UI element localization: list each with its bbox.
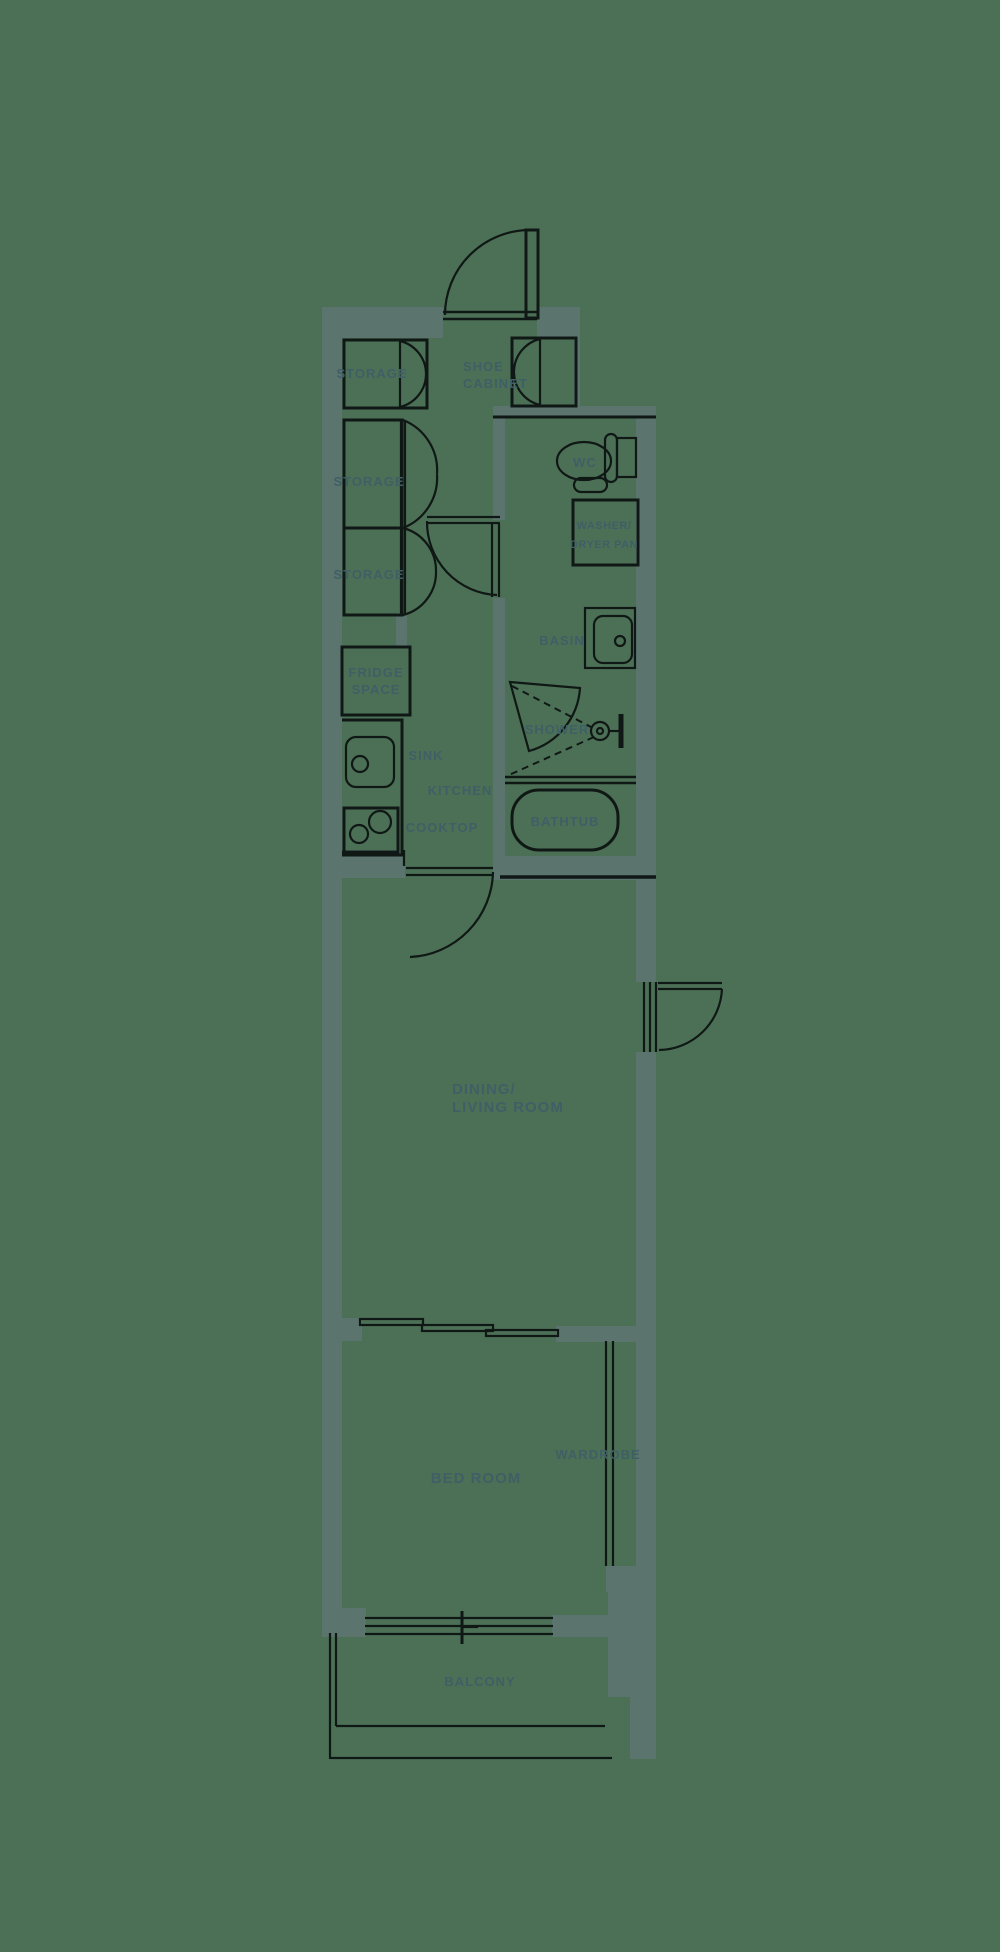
label-fridge-1: FRIDGE	[348, 665, 403, 680]
washer-dryer-pan	[573, 500, 638, 565]
bathroom-divider-line	[505, 777, 636, 783]
slider-panel-2	[422, 1325, 493, 1331]
label-cooktop: COOKTOP	[406, 820, 479, 835]
wall-divider-left	[322, 1318, 362, 1341]
balcony-bottom-rail	[330, 1726, 612, 1758]
cooktop-burner-2	[350, 825, 368, 843]
bedroom-window	[365, 1611, 553, 1644]
floor-plan: STORAGE SHOE CABINET STORAGE STORAGE WC …	[0, 0, 1000, 1952]
cooktop-burner-1	[369, 811, 391, 833]
side-door-panel	[658, 983, 722, 989]
entrance-door-swing-arc	[445, 230, 530, 315]
label-shoe-cabinet-1: SHOE	[463, 359, 504, 374]
shoe-cabinet-box	[512, 338, 576, 406]
basin-vanity	[585, 608, 635, 668]
entrance-threshold	[443, 312, 537, 319]
side-door-swing-arc	[659, 989, 722, 1050]
storage3-double-door	[403, 528, 436, 615]
washroom-door	[427, 517, 500, 597]
label-basin: BASIN	[539, 633, 584, 648]
room-labels: STORAGE SHOE CABINET STORAGE STORAGE WC …	[333, 359, 640, 1689]
balcony-railing	[330, 1633, 612, 1759]
shower-head-center	[597, 728, 603, 734]
label-bedroom: BED ROOM	[431, 1470, 522, 1487]
basin-bowl	[594, 616, 632, 663]
sliding-partition	[360, 1319, 558, 1336]
basin-faucet	[615, 636, 625, 646]
label-storage-1: STORAGE	[336, 366, 407, 381]
wall-right-bedroom	[636, 1341, 656, 1608]
label-shower: SHOWER	[525, 722, 590, 737]
label-fridge-2: SPACE	[352, 682, 401, 697]
wall-balcony-right-lower	[630, 1697, 656, 1759]
label-washer-2: DRYER PAN	[570, 539, 638, 551]
label-dining-1: DINING/	[452, 1081, 516, 1098]
wall-bedroom-bottom-right	[552, 1615, 608, 1637]
label-dining-2: LIVING ROOM	[452, 1099, 564, 1116]
entrance-door-panel	[526, 230, 538, 318]
shower-head-icon	[591, 722, 609, 740]
label-storage-2: STORAGE	[333, 474, 404, 489]
wall-top-left	[326, 307, 443, 338]
label-wc: WC	[573, 455, 597, 470]
wall-right-living-lower	[636, 1052, 656, 1340]
floor-plan-drawing: STORAGE SHOE CABINET STORAGE STORAGE WC …	[0, 0, 1000, 1952]
wall-divider-right	[556, 1326, 656, 1342]
label-sink: SINK	[408, 748, 443, 763]
label-wardrobe: WARDROBE	[555, 1447, 640, 1462]
washer-pan-box	[573, 500, 638, 565]
balcony-left-rail	[330, 1633, 336, 1759]
label-kitchen: KITCHEN	[428, 783, 493, 798]
label-storage-3: STORAGE	[333, 567, 404, 582]
storage2-double-door	[403, 420, 437, 528]
slider-panel-1	[360, 1319, 423, 1325]
kitchen-door	[404, 850, 493, 957]
label-bathtub: BATHTUB	[531, 814, 600, 829]
side-door-frame	[644, 982, 656, 1052]
living-side-door	[644, 982, 722, 1052]
slider-panel-3	[486, 1330, 558, 1336]
wall-right-living-upper	[636, 880, 656, 982]
wall-bedroom-bottom-left	[322, 1608, 366, 1637]
label-washer-1: WASHER/	[577, 520, 632, 532]
wall-hall-partition-lower	[493, 598, 505, 880]
wall-hall-partition-upper	[493, 418, 505, 520]
wall-stub-hall	[396, 613, 407, 647]
washroom-door-panel	[427, 517, 500, 523]
washroom-door-swing-arc	[427, 521, 497, 595]
kitchen-door-swing-arc	[410, 872, 493, 957]
shoe-cabinet	[512, 338, 576, 406]
toilet-tank	[617, 438, 636, 477]
washroom-door-frame	[492, 524, 499, 597]
sink-drain	[352, 756, 368, 772]
wall-balcony-right-upper	[608, 1590, 656, 1697]
label-shoe-cabinet-2: CABINET	[463, 376, 528, 391]
wall-left-exterior	[322, 307, 342, 1637]
wall-top-right	[537, 307, 580, 338]
kitchen-door-panel	[406, 868, 493, 875]
shoe-cabinet-bifold-door	[514, 339, 540, 405]
fridge-space-box	[342, 647, 410, 715]
wall-below-wardrobe	[606, 1566, 636, 1592]
window-sashes	[365, 1618, 553, 1634]
label-balcony: BALCONY	[444, 1674, 515, 1689]
wall-right-wc-block	[636, 418, 656, 880]
entrance-door	[445, 230, 538, 318]
